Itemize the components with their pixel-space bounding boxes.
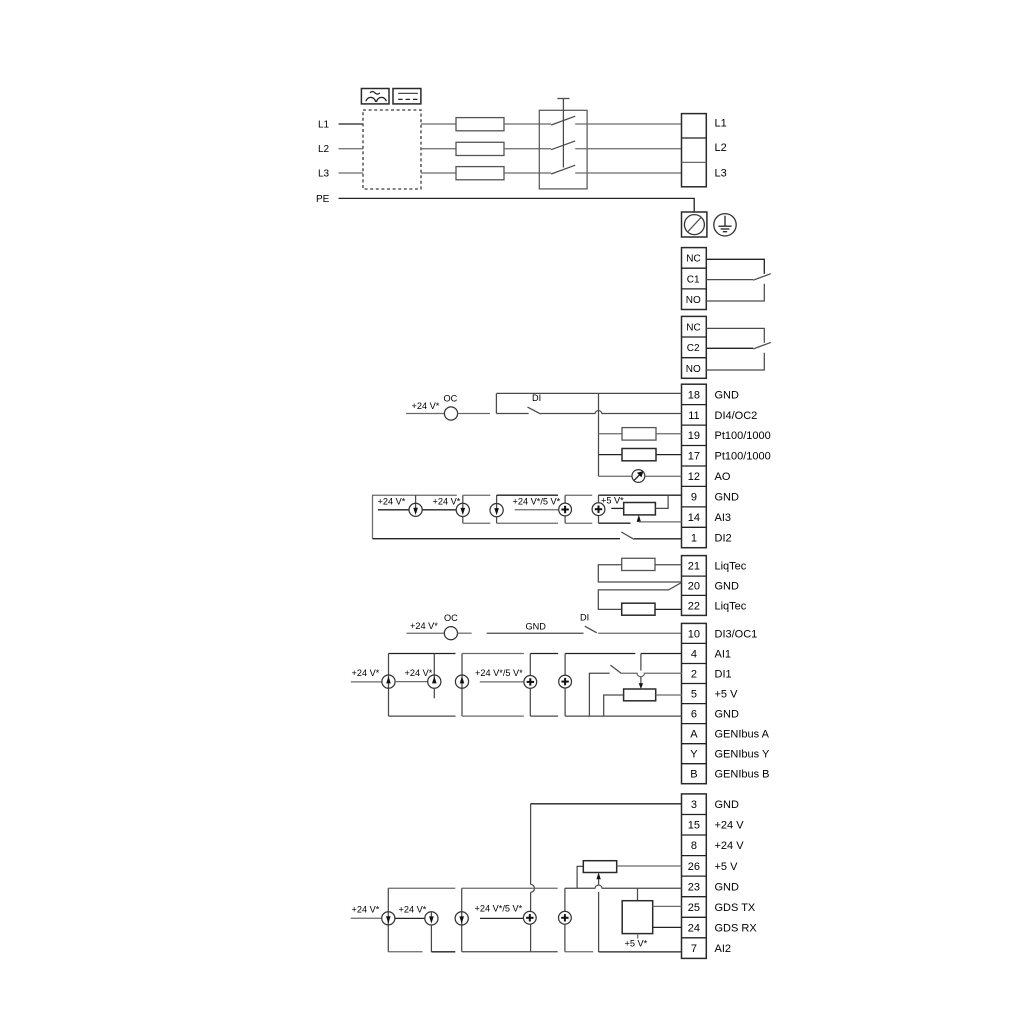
svg-text:AO: AO <box>715 471 731 483</box>
svg-text:+24 V*: +24 V* <box>410 621 438 631</box>
svg-text:LiqTec: LiqTec <box>715 561 747 573</box>
svg-text:DI1: DI1 <box>715 668 732 680</box>
svg-text:22: 22 <box>688 600 700 612</box>
svg-text:NC: NC <box>686 254 700 265</box>
svg-text:OC: OC <box>444 613 458 623</box>
svg-text:14: 14 <box>688 512 700 524</box>
svg-text:+24 V: +24 V <box>715 840 745 852</box>
svg-text:21: 21 <box>688 561 700 573</box>
svg-text:7: 7 <box>691 943 697 955</box>
svg-text:AI2: AI2 <box>715 943 732 955</box>
svg-text:+5 V*: +5 V* <box>625 938 648 948</box>
svg-text:GDS RX: GDS RX <box>715 923 758 935</box>
svg-text:NO: NO <box>686 295 701 306</box>
svg-text:GENIbus Y: GENIbus Y <box>715 749 770 761</box>
svg-text:1: 1 <box>691 532 697 544</box>
svg-text:L1: L1 <box>318 120 330 131</box>
svg-text:+24 V*/5 V*: +24 V*/5 V* <box>513 496 561 506</box>
svg-text:+24 V*/5 V*: +24 V*/5 V* <box>475 904 523 914</box>
svg-text:20: 20 <box>688 581 700 593</box>
svg-text:C2: C2 <box>687 343 700 354</box>
svg-text:L2: L2 <box>715 142 727 154</box>
svg-text:NC: NC <box>686 322 700 333</box>
svg-text:19: 19 <box>688 430 700 442</box>
svg-text:25: 25 <box>688 902 700 914</box>
svg-text:DI3/OC1: DI3/OC1 <box>715 628 758 640</box>
svg-text:6: 6 <box>691 709 697 721</box>
svg-text:C1: C1 <box>687 274 700 285</box>
svg-text:+24 V*: +24 V* <box>405 668 433 678</box>
svg-text:GND: GND <box>526 622 547 632</box>
svg-text:GND: GND <box>715 881 740 893</box>
svg-text:26: 26 <box>688 861 700 873</box>
svg-text:AI3: AI3 <box>715 512 732 524</box>
svg-text:L3: L3 <box>715 167 727 179</box>
svg-text:18: 18 <box>688 389 700 401</box>
svg-text:Y: Y <box>690 749 698 761</box>
svg-text:B: B <box>690 769 697 781</box>
svg-text:11: 11 <box>688 410 699 422</box>
svg-text:AI1: AI1 <box>715 648 732 660</box>
svg-text:L1: L1 <box>715 117 727 129</box>
svg-text:17: 17 <box>688 451 700 463</box>
svg-text:23: 23 <box>688 881 700 893</box>
svg-text:8: 8 <box>691 840 697 852</box>
svg-text:GND: GND <box>715 389 740 401</box>
svg-text:GENIbus B: GENIbus B <box>715 769 770 781</box>
svg-text:GND: GND <box>715 799 740 811</box>
svg-text:+5 V*: +5 V* <box>601 495 624 505</box>
svg-text:GENIbus A: GENIbus A <box>715 729 770 741</box>
svg-text:+24 V*: +24 V* <box>378 496 406 506</box>
svg-text:L3: L3 <box>318 169 330 180</box>
svg-text:DI: DI <box>532 393 541 403</box>
svg-text:2: 2 <box>691 668 697 680</box>
svg-text:15: 15 <box>688 820 700 832</box>
svg-text:9: 9 <box>691 492 697 504</box>
svg-text:LiqTec: LiqTec <box>715 600 747 612</box>
svg-text:5: 5 <box>691 689 697 701</box>
svg-text:+5 V: +5 V <box>715 689 739 701</box>
svg-text:+24 V: +24 V <box>715 820 745 832</box>
svg-text:L2: L2 <box>318 144 330 155</box>
svg-text:GND: GND <box>715 709 740 721</box>
svg-text:4: 4 <box>691 648 697 660</box>
svg-text:OC: OC <box>444 394 458 404</box>
svg-text:+24 V*: +24 V* <box>433 496 461 506</box>
svg-text:GND: GND <box>715 581 740 593</box>
svg-text:DI4/OC2: DI4/OC2 <box>715 410 758 422</box>
svg-text:+24 V*: +24 V* <box>352 904 380 914</box>
svg-text:GND: GND <box>715 492 740 504</box>
svg-text:10: 10 <box>688 628 700 640</box>
svg-text:+5 V: +5 V <box>715 861 739 873</box>
svg-text:Pt100/1000: Pt100/1000 <box>715 451 771 463</box>
svg-text:+24 V*: +24 V* <box>412 401 440 411</box>
svg-text:Pt100/1000: Pt100/1000 <box>715 430 771 442</box>
svg-text:DI2: DI2 <box>715 532 732 544</box>
svg-text:24: 24 <box>688 923 700 935</box>
svg-text:+24 V*: +24 V* <box>399 904 427 914</box>
svg-text:3: 3 <box>691 799 697 811</box>
svg-text:GDS TX: GDS TX <box>715 902 756 914</box>
svg-text:DI: DI <box>580 613 589 623</box>
svg-text:A: A <box>690 729 698 741</box>
svg-text:PE: PE <box>316 194 330 205</box>
svg-text:+24 V*/5 V*: +24 V*/5 V* <box>475 668 523 678</box>
svg-text:NO: NO <box>686 364 701 375</box>
svg-text:+24 V*: +24 V* <box>352 668 380 678</box>
svg-text:12: 12 <box>688 471 700 483</box>
